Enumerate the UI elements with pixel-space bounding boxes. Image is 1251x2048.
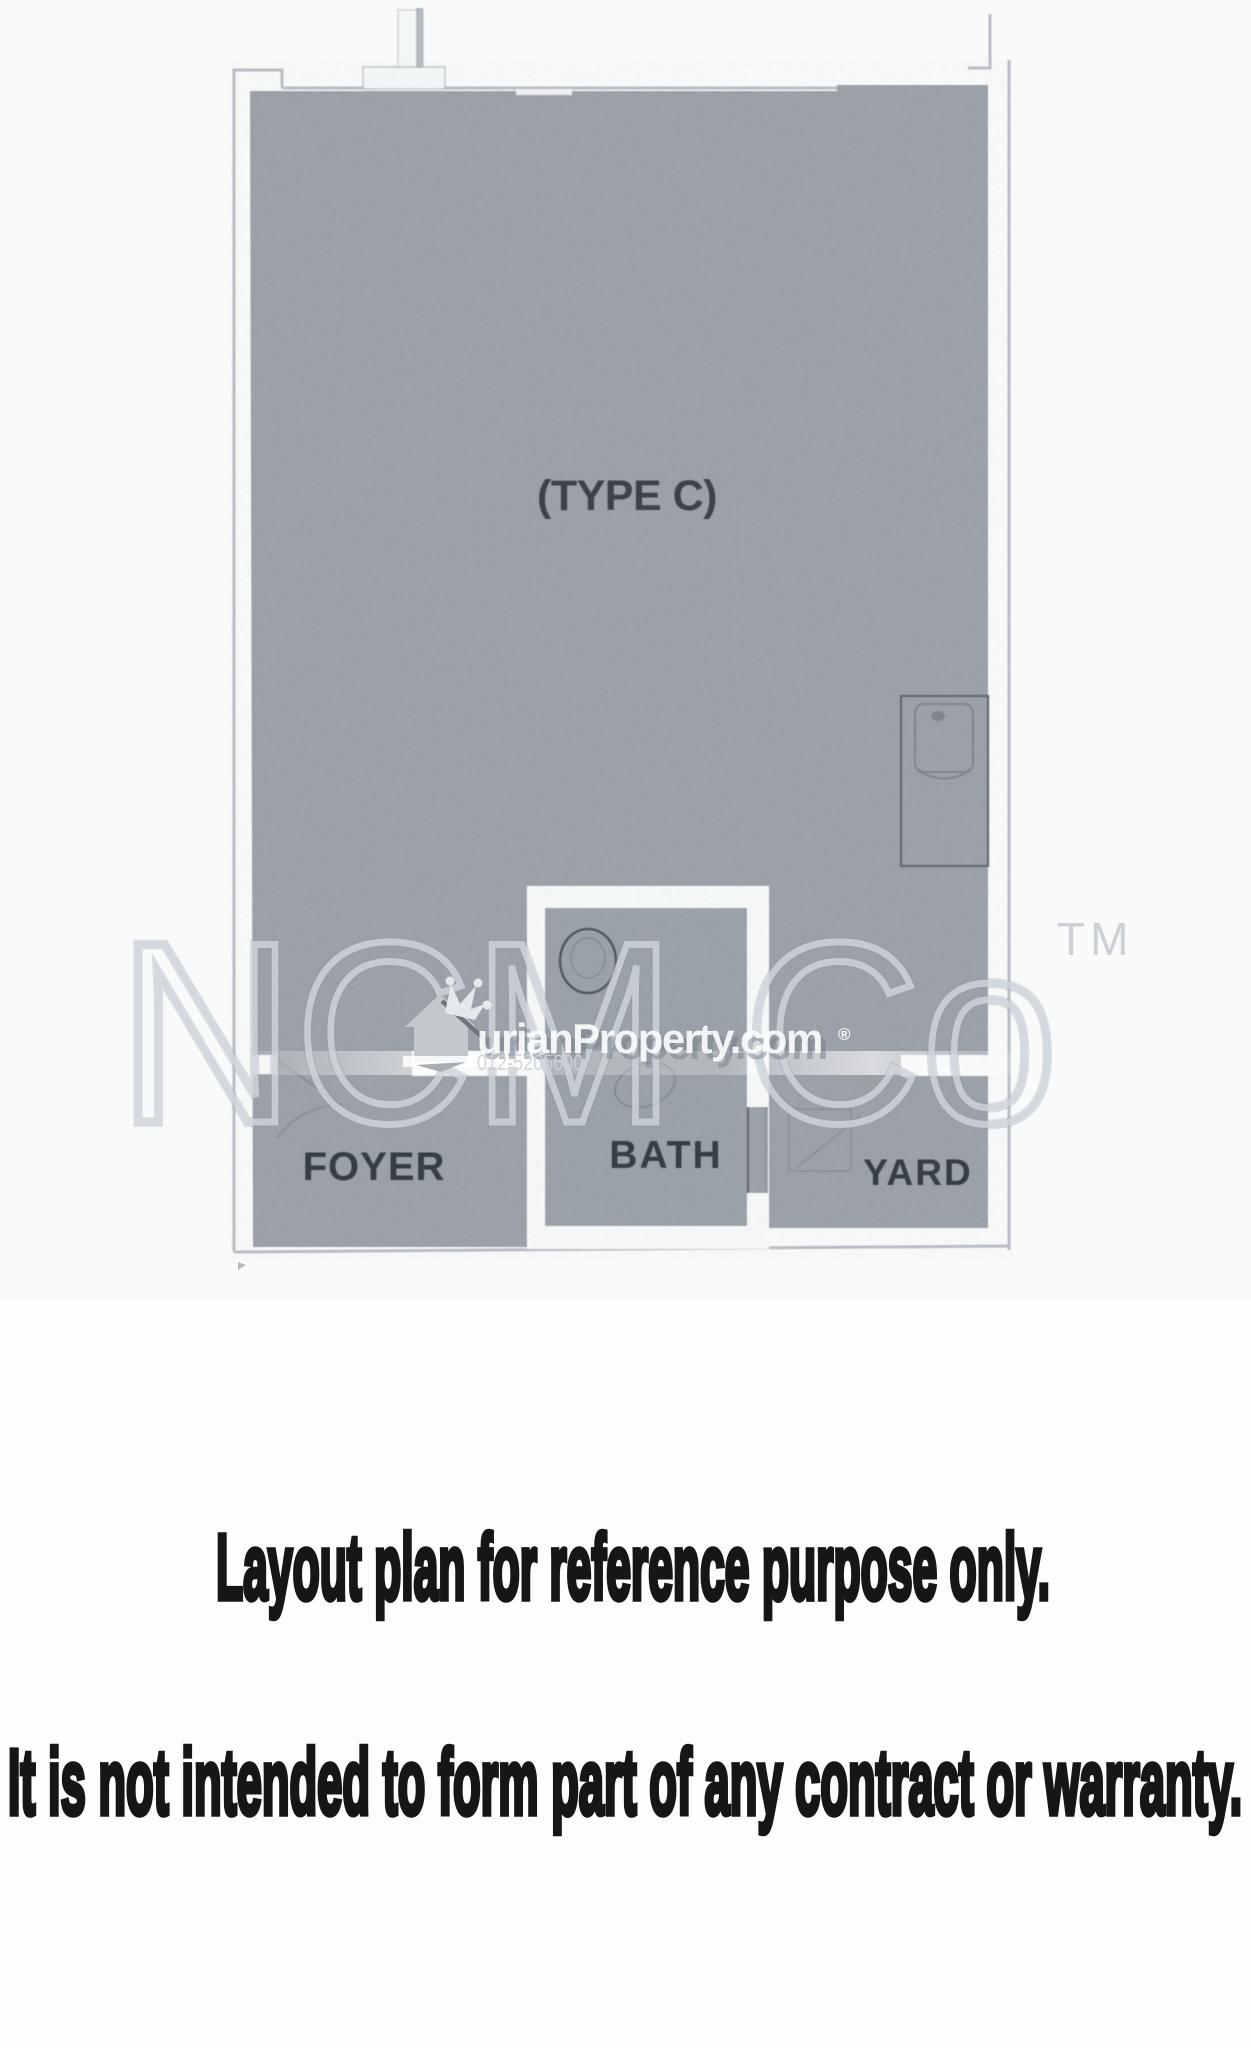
- svg-text:TM: TM: [1057, 913, 1133, 965]
- svg-text:(TYPE C): (TYPE C): [537, 472, 717, 520]
- svg-text:Layout plan for reference purp: Layout plan for reference purpose only.: [216, 1516, 1050, 1619]
- svg-text:012-5205600: 012-5205600: [477, 1051, 583, 1075]
- svg-text:®: ®: [838, 1025, 851, 1044]
- svg-text:It is not intended to form par: It is not intended to form part of any c…: [8, 1731, 1242, 1834]
